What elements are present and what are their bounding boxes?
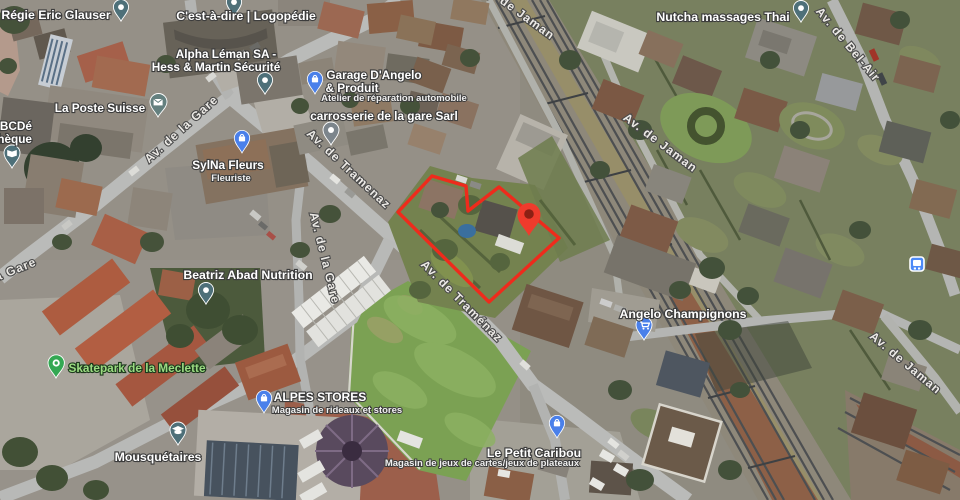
svg-text:Nutcha massages Thai: Nutcha massages Thai: [656, 10, 789, 24]
svg-text:carrosserie de la gare Sarl: carrosserie de la gare Sarl: [310, 109, 458, 123]
svg-text:Beatriz Abad Nutrition: Beatriz Abad Nutrition: [183, 268, 312, 282]
svg-text:Magasin de jeux de cartes/jeux: Magasin de jeux de cartes/jeux de platea…: [385, 458, 580, 469]
svg-text:Régie Eric Glauser: Régie Eric Glauser: [1, 8, 111, 22]
svg-text:Magasin de rideaux et stores: Magasin de rideaux et stores: [272, 405, 402, 416]
svg-text:Hess & Martin Sécurité: Hess & Martin Sécurité: [152, 60, 281, 74]
svg-text:SylNa Fleurs: SylNa Fleurs: [192, 158, 264, 172]
svg-text:Angelo Champignons: Angelo Champignons: [619, 307, 746, 321]
svg-text:ALPES STORES: ALPES STORES: [274, 390, 366, 404]
svg-text:C'est-à-dire | Logopédie: C'est-à-dire | Logopédie: [176, 9, 316, 23]
svg-text:ABCDé: ABCDé: [0, 119, 32, 133]
svg-text:Atelier de réparation automobi: Atelier de réparation automobile: [321, 93, 467, 104]
svg-text:Alpha Léman SA -: Alpha Léman SA -: [176, 47, 277, 61]
svg-text:hèque: hèque: [0, 132, 32, 146]
svg-text:Mousquétaires: Mousquétaires: [115, 450, 202, 464]
svg-text:La Poste Suisse: La Poste Suisse: [55, 101, 146, 115]
svg-text:Garage D'Angelo: Garage D'Angelo: [326, 68, 421, 82]
svg-text:Skatepark de la Meclette: Skatepark de la Meclette: [68, 361, 205, 375]
svg-text:Fleuriste: Fleuriste: [211, 173, 251, 184]
